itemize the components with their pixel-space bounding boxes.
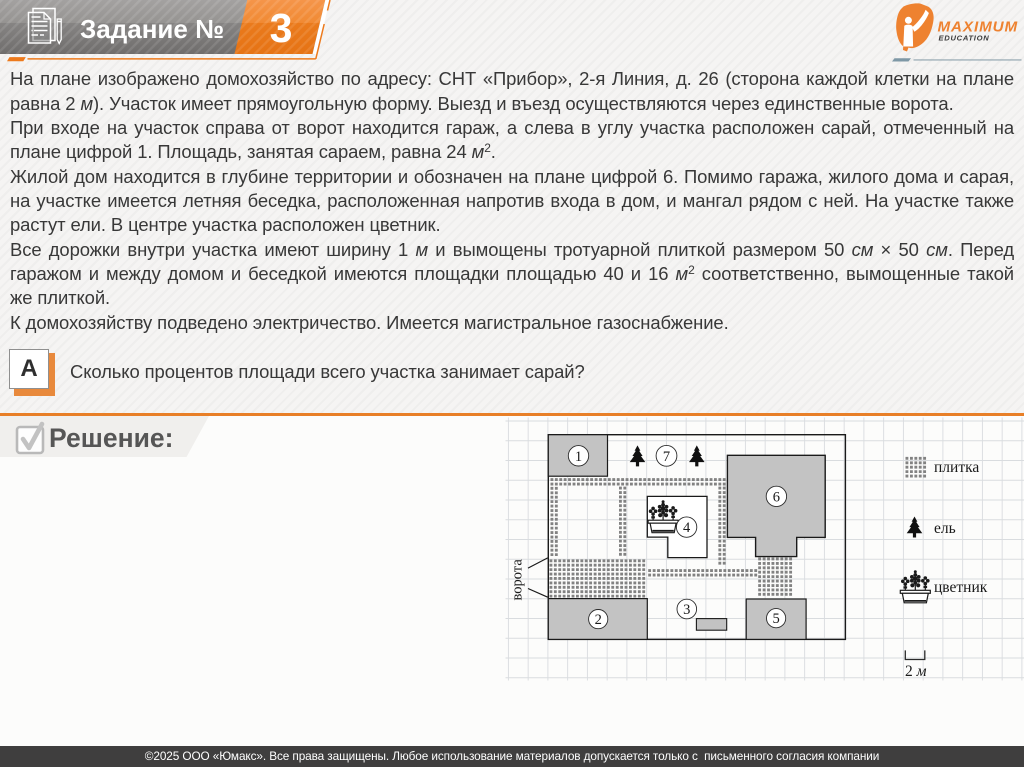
svg-text:5: 5 [772,611,779,627]
svg-text:3: 3 [270,5,293,51]
svg-text:ворота: ворота [510,559,526,601]
svg-text:3: 3 [683,602,690,618]
svg-text:цветник: цветник [934,579,988,596]
svg-text:1: 1 [575,449,582,465]
svg-text:6: 6 [773,489,780,505]
svg-text:7: 7 [663,449,670,465]
svg-text:Задание №: Задание № [80,14,224,44]
svg-text:2: 2 [595,612,602,628]
svg-text:плитка: плитка [934,459,979,476]
svg-text:4: 4 [683,520,691,536]
svg-text:EDUCATION: EDUCATION [939,34,990,43]
svg-text:ель: ель [934,520,956,537]
svg-text:2 м: 2 м [905,663,927,680]
